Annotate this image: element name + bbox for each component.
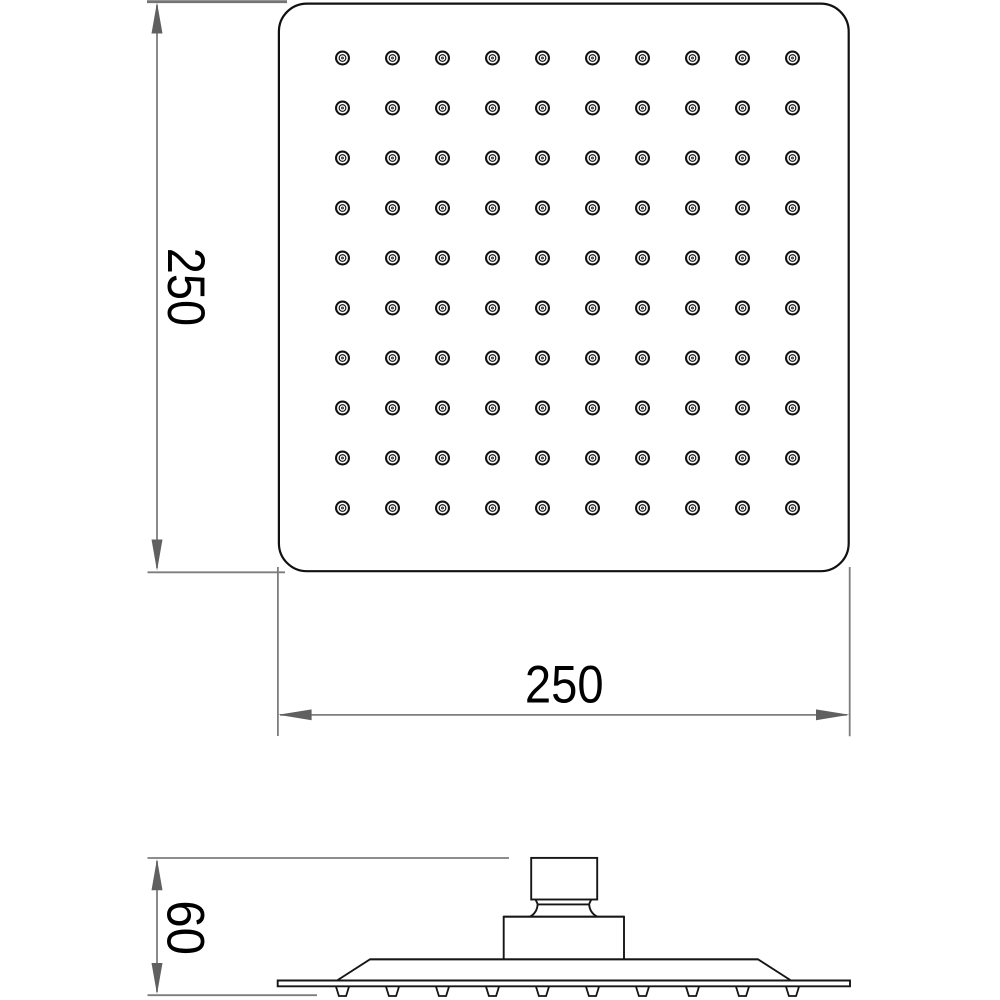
svg-text:250: 250 [525, 655, 604, 714]
svg-text:60: 60 [155, 900, 214, 955]
svg-text:250: 250 [156, 248, 215, 326]
